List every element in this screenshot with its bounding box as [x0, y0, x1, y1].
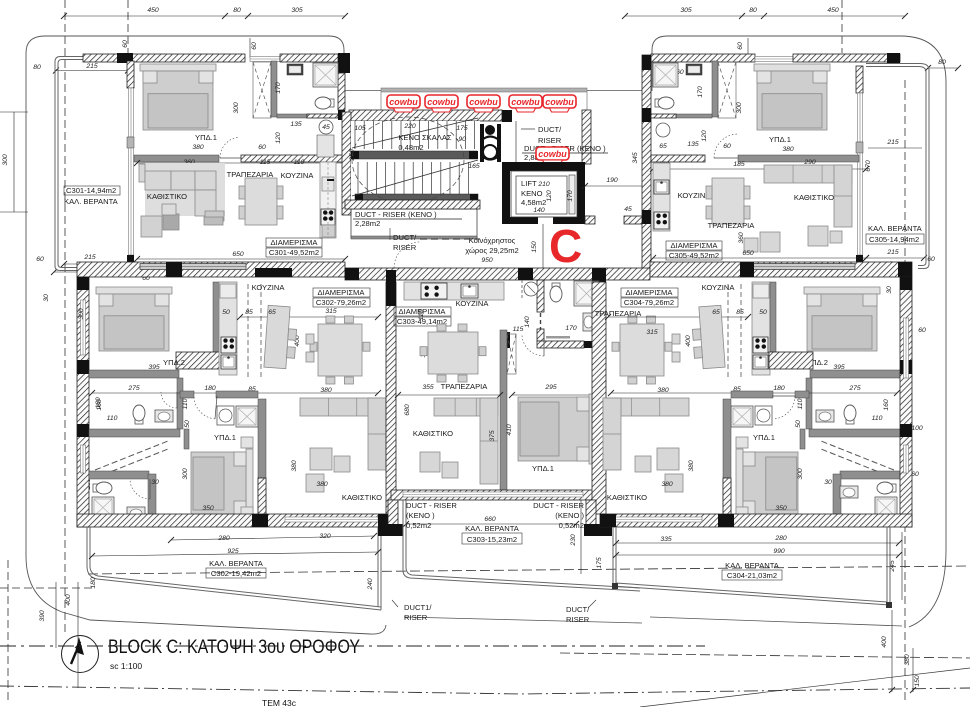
svg-text:355: 355: [422, 384, 434, 391]
svg-text:110: 110: [182, 398, 189, 409]
svg-text:RISER: RISER: [393, 243, 417, 252]
svg-text:60: 60: [723, 143, 731, 150]
svg-text:60: 60: [251, 42, 258, 50]
svg-text:115: 115: [513, 326, 524, 333]
svg-text:ΥΠΔ.2: ΥΠΔ.2: [163, 358, 185, 367]
svg-text:380: 380: [782, 146, 794, 153]
svg-text:60: 60: [258, 144, 266, 151]
svg-text:300: 300: [182, 468, 189, 480]
svg-text:30: 30: [151, 479, 159, 486]
svg-text:ΥΠΔ.1: ΥΠΔ.1: [214, 433, 236, 442]
svg-text:180: 180: [773, 385, 785, 392]
svg-text:380: 380: [904, 654, 911, 666]
svg-text:65: 65: [712, 309, 720, 316]
svg-text:BLOCK C: ΚΑΤΟΨΗ 3ου ΟΡΟΦΟΥ: BLOCK C: ΚΑΤΟΨΗ 3ου ΟΡΟΦΟΥ: [108, 637, 360, 658]
svg-text:280: 280: [774, 535, 787, 542]
svg-text:380: 380: [291, 460, 298, 472]
svg-text:650: 650: [742, 250, 754, 257]
svg-text:295: 295: [544, 384, 557, 391]
svg-text:cowbu: cowbu: [427, 97, 456, 107]
svg-text:85: 85: [245, 309, 253, 316]
svg-text:C303-15,23m2: C303-15,23m2: [467, 535, 517, 544]
svg-text:190: 190: [606, 177, 618, 184]
svg-text:305: 305: [680, 7, 692, 14]
svg-text:ΚΑΘΙΣΤΙΚΟ: ΚΑΘΙΣΤΙΚΟ: [147, 192, 187, 201]
svg-text:175: 175: [596, 557, 603, 569]
svg-text:C301-49,52m2: C301-49,52m2: [269, 248, 319, 257]
svg-text:170: 170: [567, 190, 574, 202]
svg-text:680: 680: [404, 404, 411, 416]
svg-text:DUCT - RISER: DUCT - RISER: [406, 501, 457, 510]
svg-text:450: 450: [147, 7, 159, 14]
svg-text:ΚΑΛ. ΒΕΡΑΝΤΑ: ΚΑΛ. ΒΕΡΑΝΤΑ: [465, 524, 520, 533]
svg-text:ΔΙΑΜΕΡΙΣΜΑ: ΔΙΑΜΕΡΙΣΜΑ: [626, 288, 674, 297]
svg-text:ΚΑΘΙΣΤΙΚΟ: ΚΑΘΙΣΤΙΚΟ: [794, 193, 834, 202]
svg-text:ΚΑΛ. ΒΕΡΑΝΤΑ: ΚΑΛ. ΒΕΡΑΝΤΑ: [868, 224, 923, 233]
svg-text:ΥΠΔ.1: ΥΠΔ.1: [532, 464, 554, 473]
svg-text:ΤΡΑΠΕΖΑΡΙΑ: ΤΡΑΠΕΖΑΡΙΑ: [227, 170, 275, 179]
svg-text:DUCT - RISER (ΚΕΝΟ ): DUCT - RISER (ΚΕΝΟ ): [355, 210, 437, 219]
svg-text:ΚΟΥΖΙΝΑ: ΚΟΥΖΙΝΑ: [456, 299, 490, 308]
svg-text:Κοινόχρηστος: Κοινόχρηστος: [469, 236, 516, 245]
svg-text:135: 135: [687, 141, 699, 148]
svg-text:240: 240: [367, 578, 374, 591]
svg-text:ΚΑΛ. ΒΕΡΑΝΤΑ: ΚΑΛ. ΒΕΡΑΝΤΑ: [209, 559, 264, 568]
svg-text:DUCT - RISER: DUCT - RISER: [533, 501, 584, 510]
svg-text:0,52m2: 0,52m2: [406, 521, 431, 530]
svg-text:400: 400: [881, 636, 888, 648]
svg-text:ΚΑΘΙΣΤΙΚΟ: ΚΑΘΙΣΤΙΚΟ: [413, 429, 453, 438]
svg-text:ΔΙΑΜΕΡΙΣΜΑ: ΔΙΑΜΕΡΙΣΜΑ: [271, 238, 319, 247]
svg-text:45: 45: [322, 124, 330, 131]
svg-text:60: 60: [36, 256, 44, 263]
svg-text:RISER: RISER: [404, 613, 428, 622]
svg-text:LIFT: LIFT: [521, 179, 537, 188]
svg-text:115: 115: [260, 159, 271, 166]
svg-text:110: 110: [797, 398, 804, 409]
svg-text:cowbu: cowbu: [469, 97, 498, 107]
svg-text:375: 375: [489, 430, 496, 442]
svg-text:170: 170: [275, 82, 282, 94]
svg-text:ΚΑΛ. ΒΕΡΑΝΤΑ: ΚΑΛ. ΒΕΡΑΝΤΑ: [725, 561, 780, 570]
svg-text:65: 65: [268, 309, 276, 316]
svg-text:50: 50: [184, 420, 191, 428]
svg-text:950: 950: [481, 257, 493, 264]
svg-text:60: 60: [927, 256, 935, 263]
svg-text:170: 170: [565, 325, 577, 332]
svg-text:ΔΙΑΜΕΡΙΣΜΑ: ΔΙΑΜΕΡΙΣΜΑ: [671, 241, 719, 250]
svg-text:390: 390: [39, 610, 46, 622]
svg-text:275: 275: [127, 385, 140, 392]
svg-text:ΤΡΑΠΕΖΑΡΙΑ: ΤΡΑΠΕΖΑΡΙΑ: [708, 221, 756, 230]
svg-text:380: 380: [661, 481, 673, 488]
svg-text:150: 150: [531, 241, 538, 253]
svg-text:ΔΙΑΜΕΡΙΣΜΑ: ΔΙΑΜΕΡΙΣΜΑ: [318, 288, 366, 297]
svg-text:50: 50: [759, 309, 767, 316]
svg-text:315: 315: [646, 329, 658, 336]
svg-text:ΤΡΑΠΕΖΑΡΙΑ: ΤΡΑΠΕΖΑΡΙΑ: [441, 382, 489, 391]
svg-text:380: 380: [316, 481, 328, 488]
svg-text:160: 160: [883, 399, 890, 411]
svg-text:cowbu: cowbu: [538, 149, 567, 159]
svg-text:220: 220: [403, 123, 416, 130]
svg-text:300: 300: [233, 102, 240, 114]
svg-text:ΥΠΔ.1: ΥΠΔ.1: [769, 135, 791, 144]
svg-text:120: 120: [701, 130, 708, 142]
svg-text:cowbu: cowbu: [511, 97, 540, 107]
svg-text:0,48m2: 0,48m2: [398, 143, 423, 152]
svg-text:4,58m2: 4,58m2: [521, 198, 546, 207]
svg-text:2,28m2: 2,28m2: [355, 219, 380, 228]
svg-text:280: 280: [217, 535, 230, 542]
svg-text:110: 110: [107, 415, 118, 422]
svg-text:120: 120: [546, 190, 553, 202]
svg-text:45: 45: [624, 206, 632, 213]
svg-text:120: 120: [275, 132, 282, 144]
svg-text:335: 335: [660, 536, 672, 543]
svg-text:105: 105: [354, 125, 366, 132]
svg-text:sc 1:100: sc 1:100: [110, 661, 142, 671]
svg-text:ΚΟΥΖΙΝΑ: ΚΟΥΖΙΝΑ: [281, 171, 315, 180]
svg-text:180: 180: [90, 577, 97, 589]
svg-text:210: 210: [537, 181, 550, 188]
svg-text:360: 360: [738, 232, 745, 244]
svg-text:160: 160: [96, 399, 103, 411]
svg-text:215: 215: [83, 254, 96, 261]
svg-text:(ΚΕΝΟ ): (ΚΕΝΟ ): [406, 511, 435, 520]
svg-text:DUCT/: DUCT/: [566, 605, 590, 614]
svg-text:ΚΑΘΙΣΤΙΚΟ: ΚΑΘΙΣΤΙΚΟ: [342, 493, 382, 502]
svg-text:140: 140: [524, 316, 531, 328]
svg-text:50: 50: [222, 309, 230, 316]
svg-text:60: 60: [122, 40, 129, 48]
svg-text:215: 215: [886, 139, 899, 146]
svg-text:170: 170: [697, 86, 704, 98]
svg-text:135: 135: [290, 121, 302, 128]
svg-text:400: 400: [65, 594, 72, 606]
svg-text:450: 450: [827, 7, 839, 14]
svg-text:C: C: [549, 220, 582, 272]
svg-text:60: 60: [918, 327, 926, 334]
svg-text:cowbu: cowbu: [389, 97, 418, 107]
svg-text:305: 305: [291, 7, 303, 14]
svg-text:110: 110: [418, 309, 425, 320]
svg-text:DUCT/: DUCT/: [538, 125, 562, 134]
svg-text:RISER: RISER: [566, 615, 590, 624]
svg-text:ΤΕΜ 43c: ΤΕΜ 43c: [262, 698, 297, 707]
svg-text:ΚΟΥΖΙΝΑ: ΚΟΥΖΙΝΑ: [702, 283, 736, 292]
svg-text:C304-79,26m2: C304-79,26m2: [624, 298, 674, 307]
svg-text:χώρος 29,25m2: χώρος 29,25m2: [465, 246, 519, 255]
svg-text:275: 275: [848, 385, 861, 392]
svg-text:ΚΑΘΙΣΤΙΚΟ: ΚΑΘΙΣΤΙΚΟ: [607, 493, 647, 502]
svg-text:ΚΑΛ. ΒΕΡΑΝΤΑ: ΚΑΛ. ΒΕΡΑΝΤΑ: [64, 197, 119, 206]
svg-text:C304-21,03m2: C304-21,03m2: [727, 571, 777, 580]
svg-text:300: 300: [797, 468, 804, 480]
svg-text:350: 350: [202, 505, 214, 512]
svg-text:C302-19,42m2: C302-19,42m2: [211, 569, 261, 578]
svg-text:50: 50: [795, 420, 802, 428]
svg-text:350: 350: [775, 505, 787, 512]
svg-text:110: 110: [872, 415, 883, 422]
svg-text:ΚΕΝΟ ΣΚΑΛΑΣ: ΚΕΝΟ ΣΚΑΛΑΣ: [398, 133, 452, 142]
svg-text:165: 165: [468, 163, 480, 170]
svg-text:80: 80: [33, 64, 41, 71]
svg-text:150: 150: [914, 675, 921, 687]
svg-text:140: 140: [533, 207, 545, 214]
svg-text:300: 300: [78, 308, 85, 320]
svg-text:80: 80: [938, 59, 946, 66]
svg-text:300: 300: [736, 102, 743, 114]
svg-text:C305-14,94m2: C305-14,94m2: [869, 235, 919, 244]
svg-text:300: 300: [2, 154, 9, 166]
svg-text:80: 80: [233, 7, 241, 14]
svg-text:C301-14,94m2: C301-14,94m2: [66, 186, 116, 195]
svg-text:990: 990: [773, 548, 785, 555]
svg-text:410: 410: [506, 424, 513, 436]
svg-text:175: 175: [456, 125, 468, 132]
svg-text:380: 380: [688, 460, 695, 472]
svg-text:100: 100: [911, 425, 923, 432]
svg-text:30: 30: [43, 294, 50, 302]
svg-text:30: 30: [886, 286, 893, 294]
svg-text:215: 215: [85, 63, 98, 70]
svg-text:ΚΟΥΖΙΝΑ: ΚΟΥΖΙΝΑ: [252, 283, 286, 292]
svg-text:110: 110: [294, 159, 305, 166]
svg-text:650: 650: [232, 251, 244, 258]
svg-text:-90: -90: [456, 136, 466, 143]
svg-text:230: 230: [570, 534, 577, 547]
svg-text:DUCT/: DUCT/: [393, 233, 417, 242]
svg-text:80: 80: [749, 7, 757, 14]
svg-text:0,52m2: 0,52m2: [559, 521, 584, 530]
svg-text:(ΚΕΝΟ ): (ΚΕΝΟ ): [555, 511, 584, 520]
svg-text:ΥΠΔ.1: ΥΠΔ.1: [753, 433, 775, 442]
svg-text:215: 215: [886, 249, 899, 256]
svg-text:60: 60: [737, 42, 744, 50]
svg-text:315: 315: [325, 308, 337, 315]
svg-text:30: 30: [824, 479, 832, 486]
svg-text:85: 85: [736, 309, 744, 316]
svg-text:cowbu: cowbu: [545, 97, 574, 107]
svg-text:380: 380: [192, 144, 204, 151]
svg-text:185: 185: [733, 161, 745, 168]
svg-text:ΥΠΔ.1: ΥΠΔ.1: [195, 133, 217, 142]
svg-text:345: 345: [632, 152, 639, 164]
svg-text:250: 250: [349, 149, 356, 162]
svg-text:ΚΕΝΟ: ΚΕΝΟ: [521, 189, 543, 198]
svg-text:65: 65: [659, 143, 667, 150]
svg-text:660: 660: [484, 516, 496, 523]
svg-text:400: 400: [685, 335, 692, 347]
svg-text:C305-49,52m2: C305-49,52m2: [669, 251, 719, 260]
svg-text:C302-79,26m2: C302-79,26m2: [316, 298, 366, 307]
svg-text:320: 320: [319, 533, 331, 540]
svg-text:180: 180: [204, 385, 216, 392]
svg-text:395: 395: [148, 364, 160, 371]
svg-text:DUCT1/: DUCT1/: [404, 603, 432, 612]
